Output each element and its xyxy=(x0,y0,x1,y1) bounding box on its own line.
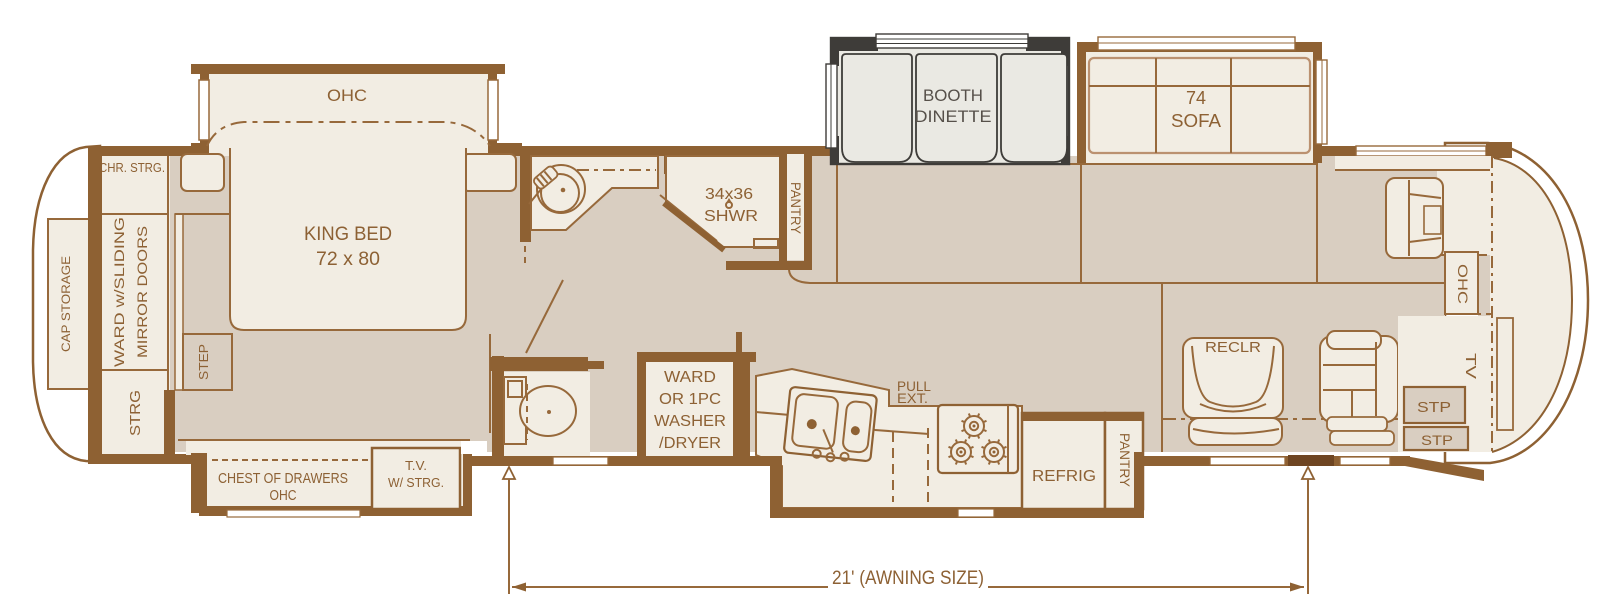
svg-text:74: 74 xyxy=(1186,88,1206,108)
svg-text:W/ STRG.: W/ STRG. xyxy=(388,475,444,490)
svg-text:BOOTH: BOOTH xyxy=(923,86,983,105)
svg-text:CHR. STRG.: CHR. STRG. xyxy=(99,160,165,175)
svg-text:KING BED: KING BED xyxy=(304,224,392,245)
svg-text:MIRROR DOORS: MIRROR DOORS xyxy=(134,226,150,358)
svg-text:DINETTE: DINETTE xyxy=(915,107,992,126)
svg-text:PANTRY: PANTRY xyxy=(788,182,803,234)
svg-text:STP: STP xyxy=(1417,399,1451,416)
svg-text:OHC: OHC xyxy=(270,487,297,504)
svg-text:/DRYER: /DRYER xyxy=(659,435,721,452)
svg-text:CAP STORAGE: CAP STORAGE xyxy=(61,256,73,352)
svg-text:OR 1PC: OR 1PC xyxy=(659,391,721,408)
svg-text:PANTRY: PANTRY xyxy=(1117,433,1132,487)
svg-text:SOFA: SOFA xyxy=(1171,111,1221,131)
svg-text:21' (AWNING SIZE): 21' (AWNING SIZE) xyxy=(832,568,984,589)
svg-text:TV: TV xyxy=(1462,353,1479,379)
svg-text:SHWR: SHWR xyxy=(704,208,758,225)
svg-text:RECLR: RECLR xyxy=(1205,339,1261,356)
svg-text:OHC: OHC xyxy=(1455,264,1471,304)
svg-text:T.V.: T.V. xyxy=(405,458,427,473)
svg-text:CHEST OF DRAWERS: CHEST OF DRAWERS xyxy=(218,470,348,487)
svg-text:OHC: OHC xyxy=(327,86,367,105)
svg-text:WARD: WARD xyxy=(664,369,716,386)
svg-text:WARD w/SLIDING: WARD w/SLIDING xyxy=(111,217,127,367)
svg-text:REFRIG: REFRIG xyxy=(1032,468,1096,485)
svg-text:WASHER: WASHER xyxy=(654,413,726,430)
svg-text:72 x 80: 72 x 80 xyxy=(316,249,380,270)
svg-text:STP: STP xyxy=(1421,432,1453,448)
svg-text:STRG: STRG xyxy=(127,390,144,436)
svg-text:EXT.: EXT. xyxy=(897,391,928,406)
svg-text:STEP: STEP xyxy=(197,344,211,380)
